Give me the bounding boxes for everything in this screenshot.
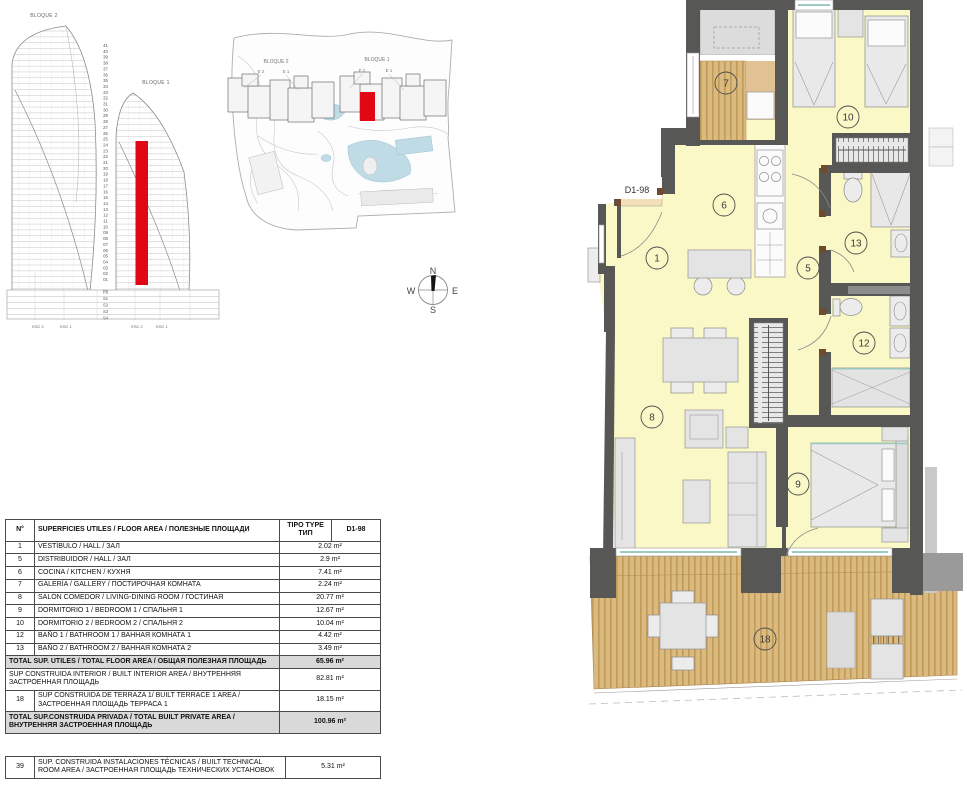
neighbour-room (700, 3, 775, 55)
tower-bloque2 (12, 26, 96, 291)
sink-13 (891, 230, 911, 257)
shower (871, 172, 911, 227)
area-row-3: 7GALERÍA / GALLERY / ПОСТИРОЧНАЯ КОМНАТА… (6, 579, 381, 592)
area-row-1: 5DISTRIBUIDOR / HALL / ЗАЛ2.9 m² (6, 554, 381, 567)
stair-label-2: ESC 2 (131, 324, 143, 329)
floor-number-08: 08 (103, 236, 108, 241)
floor-number-32: 32 (103, 96, 108, 101)
floor-number-01: 01 (103, 277, 108, 282)
floor-number-18: 18 (103, 178, 108, 183)
svg-text:8: 8 (649, 413, 655, 424)
floor-number-04: 04 (103, 259, 108, 264)
entrance-label-b1-e1: E 1 (386, 68, 393, 73)
header-unit: D1-98 (332, 520, 381, 542)
floor-number-29: 29 (103, 113, 108, 118)
row-number: 12 (6, 630, 35, 643)
row-description: VESTÍBULO / HALL / ЗАЛ (35, 541, 280, 554)
floor-number-37: 37 (103, 66, 108, 71)
basement-level-S4: S4 (103, 316, 109, 321)
floor-number-33: 33 (103, 90, 108, 95)
svg-text:6: 6 (721, 201, 727, 212)
exterior-panels (929, 128, 953, 166)
apartment-floor-plan: D1-98 1 5 6 7 8 9 10 12 13 18 (586, 0, 967, 715)
toilet-13 (844, 172, 862, 202)
area-row-5: 9DORMITORIO 1 / BEDROOM 1 / СПАЛЬНЯ 112.… (6, 605, 381, 618)
tech-number: 39 (6, 757, 35, 779)
kitchen-counter (755, 143, 785, 277)
bed-single-right (865, 16, 908, 107)
floor-number-25: 25 (103, 137, 108, 142)
basement-level-PB: PB (103, 290, 109, 295)
row-number: 1 (6, 541, 35, 554)
tech-row: 39 SUP. CONSTRUIDA INSTALACIONES TÉCNICA… (6, 757, 381, 779)
row-number: 18 (6, 690, 35, 712)
area-row-6: 10DORMITORIO 2 / BEDROOM 2 / СПАЛЬНЯ 210… (6, 618, 381, 631)
row-description: TOTAL SUP.CONSTRUIDA PRIVADA / TOTAL BUI… (6, 712, 280, 734)
floor-number-17: 17 (103, 183, 108, 188)
floor-number-06: 06 (103, 248, 108, 253)
floor-number-15: 15 (103, 195, 108, 200)
building-elevation-diagram: BLOQUE 2 BLOQUE 1 4140393837363534333231… (2, 2, 224, 337)
site-bloque2-label: BLOQUE 2 (263, 59, 288, 65)
floor-number-39: 39 (103, 55, 108, 60)
stair-core-labels: ESC 2ESC 1ESC 2ESC 1 (32, 324, 168, 329)
area-row-11: 18SUP CONSTRUIDA DE TERRAZA 1/ BUILT TER… (6, 690, 381, 712)
svg-text:10: 10 (842, 113, 854, 124)
page: { "unit": "D1-98", "elevation": { "bloqu… (0, 0, 967, 785)
svg-text:7: 7 (723, 79, 729, 90)
row-description: DORMITORIO 1 / BEDROOM 1 / СПАЛЬНЯ 1 (35, 605, 280, 618)
row-description: SALÓN COMEDOR / LIVING-DINING ROOM / ГОС… (35, 592, 280, 605)
row-number: 5 (6, 554, 35, 567)
area-row-0: 1VESTÍBULO / HALL / ЗАЛ2.02 m² (6, 541, 381, 554)
entrance-label-b1-e2: E 2 (359, 68, 366, 73)
bloque2-label: BLOQUE 2 (30, 13, 57, 19)
highlighted-unit-stack (136, 141, 149, 285)
floor-number-10: 10 (103, 224, 108, 229)
row-description: GALERÍA / GALLERY / ПОСТИРОЧНАЯ КОМНАТА (35, 579, 280, 592)
floor-number-09: 09 (103, 230, 108, 235)
row-description: TOTAL SUP. UTILES / TOTAL FLOOR AREA / О… (6, 656, 280, 669)
row-area-value: 20.77 m² (280, 592, 381, 605)
compass-w: W (407, 286, 416, 296)
tech-value: 5.31 m² (286, 757, 381, 779)
floor-number-02: 02 (103, 271, 108, 276)
row-area-value: 2.9 m² (280, 554, 381, 567)
basement-level-labels: PBS1S2S3S4 (103, 290, 109, 321)
terrace-mat (827, 612, 855, 668)
row-area-value: 10.04 m² (280, 618, 381, 631)
stair-label-3: ESC 1 (156, 324, 168, 329)
floor-number-36: 36 (103, 72, 108, 77)
row-area-value: 7.41 m² (280, 567, 381, 580)
gallery-floor (700, 61, 746, 143)
bathtub (832, 368, 910, 407)
floor-number-19: 19 (103, 172, 108, 177)
header-number: N° (6, 520, 35, 542)
stair-label-0: ESC 2 (32, 324, 44, 329)
row-description: DISTRIBUIDOR / HALL / ЗАЛ (35, 554, 280, 567)
row-number: 10 (6, 618, 35, 631)
stair-label-1: ESC 1 (60, 324, 72, 329)
wall-inset (848, 286, 910, 294)
coffee-table (683, 480, 710, 523)
area-row-7: 12BAÑO 1 / BATHROOM 1 / ВАННАЯ КОМНАТА 1… (6, 630, 381, 643)
bed-single-left (793, 8, 835, 107)
floor-number-35: 35 (103, 78, 108, 83)
tower-bloque1 (116, 93, 190, 291)
tech-desc: SUP. CONSTRUIDA INSTALACIONES TÉCNICAS /… (35, 757, 286, 779)
area-row-4: 8SALÓN COMEDOR / LIVING-DINING ROOM / ГО… (6, 592, 381, 605)
svg-text:12: 12 (858, 339, 870, 350)
site-bloque1-label: BLOQUE 1 (364, 57, 389, 63)
row-description: BAÑO 1 / BATHROOM 1 / ВАННАЯ КОМНАТА 1 (35, 630, 280, 643)
nightstand (838, 9, 863, 37)
area-row-8: 13BAÑO 2 / BATHROOM 2 / ВАННАЯ КОМНАТА 2… (6, 643, 381, 656)
svg-text:5: 5 (805, 264, 811, 275)
row-area-value: 2.02 m² (280, 541, 381, 554)
row-description: DORMITORIO 2 / BEDROOM 2 / СПАЛЬНЯ 2 (35, 618, 280, 631)
floor-number-26: 26 (103, 131, 108, 136)
row-description: COCINA / KITCHEN / КУХНЯ (35, 567, 280, 580)
row-area-value: 3.49 m² (280, 643, 381, 656)
floor-number-38: 38 (103, 61, 108, 66)
table-header-row: N° SUPERFICIES UTILES / FLOOR AREA / ПОЛ… (6, 520, 381, 542)
floor-number-12: 12 (103, 213, 108, 218)
floor-number-20: 20 (103, 166, 108, 171)
sofa (728, 452, 766, 547)
area-row-12: TOTAL SUP.CONSTRUIDA PRIVADA / TOTAL BUI… (6, 712, 381, 734)
floor-number-41: 41 (103, 43, 108, 48)
area-row-10: SUP CONSTRUIDA INTERIOR / BUILT INTERIOR… (6, 669, 381, 691)
row-number: 7 (6, 579, 35, 592)
row-area-value: 12.67 m² (280, 605, 381, 618)
basement-level-S2: S2 (103, 303, 109, 308)
tv-sideboard (615, 438, 635, 555)
floor-number-27: 27 (103, 125, 108, 130)
unit-label: D1-98 (625, 185, 650, 195)
row-description: SUP CONSTRUIDA DE TERRAZA 1/ BUILT TERRA… (35, 690, 280, 712)
neighbour-sill (700, 55, 775, 61)
bloque1-label: BLOQUE 1 (142, 80, 169, 86)
row-description: SUP CONSTRUIDA INTERIOR / BUILT INTERIOR… (6, 669, 280, 691)
area-row-2: 6COCINA / KITCHEN / КУХНЯ7.41 m² (6, 567, 381, 580)
wardrobe-bedroom2 (832, 134, 912, 166)
row-number: 6 (6, 567, 35, 580)
wardrobe-hall (749, 318, 788, 428)
site-plan: BLOQUE 2 BLOQUE 1 E 2 E 1 E 2 E 1 (198, 16, 466, 238)
header-title: SUPERFICIES UTILES / FLOOR AREA / ПОЛЕЗН… (35, 520, 280, 542)
armchair (685, 410, 723, 448)
floor-number-05: 05 (103, 254, 108, 259)
compass-n: N (430, 266, 437, 276)
svg-text:1: 1 (654, 254, 660, 265)
header-type: TIPO TYPE ТИП (280, 520, 332, 542)
floor-number-31: 31 (103, 102, 108, 107)
svg-text:13: 13 (850, 239, 862, 250)
basement-level-S3: S3 (103, 309, 109, 314)
entrance-label-b2-e2: E 2 (258, 69, 265, 74)
floor-number-40: 40 (103, 49, 108, 54)
row-area-value: 100.96 m² (280, 712, 381, 734)
technical-room-table: 39 SUP. CONSTRUIDA INSTALACIONES TÉCNICA… (5, 756, 381, 779)
floor-number-13: 13 (103, 207, 108, 212)
bed-double (811, 427, 908, 542)
appliance (747, 92, 774, 119)
floor-number-30: 30 (103, 107, 108, 112)
floor-number-22: 22 (103, 154, 108, 159)
compass-needle (431, 275, 436, 291)
row-area-value: 65.96 m² (280, 656, 381, 669)
highlighted-unit-footprint (360, 92, 375, 121)
boundary-dashed-line (589, 690, 962, 704)
side-table (726, 427, 748, 448)
floor-number-24: 24 (103, 142, 108, 147)
floor-number-34: 34 (103, 84, 108, 89)
svg-text:18: 18 (759, 635, 771, 646)
row-area-value: 2.24 m² (280, 579, 381, 592)
compass-rose: N S E W (398, 250, 470, 322)
row-description: BAÑO 2 / BATHROOM 2 / ВАННАЯ КОМНАТА 2 (35, 643, 280, 656)
floor-area-table: N° SUPERFICIES UTILES / FLOOR AREA / ПОЛ… (5, 519, 381, 734)
row-area-value: 18.15 m² (280, 690, 381, 712)
row-area-value: 4.42 m² (280, 630, 381, 643)
toilet-12 (833, 299, 862, 317)
sun-loungers (871, 599, 903, 679)
neighbour-terrace-piece (923, 553, 963, 591)
floor-number-11: 11 (103, 219, 108, 224)
row-number: 13 (6, 643, 35, 656)
floor-number-28: 28 (103, 119, 108, 124)
basement-level-S1: S1 (103, 296, 109, 301)
floor-number-07: 07 (103, 242, 108, 247)
svg-text:9: 9 (795, 480, 801, 491)
floor-number-03: 03 (103, 265, 108, 270)
entrance-label-b2-e1: E 1 (283, 69, 290, 74)
area-row-9: TOTAL SUP. UTILES / TOTAL FLOOR AREA / О… (6, 656, 381, 669)
row-number: 9 (6, 605, 35, 618)
floor-number-21: 21 (103, 160, 108, 165)
floor-number-column: 4140393837363534333231302928272625242322… (103, 43, 108, 282)
row-area-value: 82.81 m² (280, 669, 381, 691)
compass-e: E (452, 286, 458, 296)
floor-number-14: 14 (103, 201, 108, 206)
row-number: 8 (6, 592, 35, 605)
compass-s: S (430, 305, 436, 315)
floor-number-23: 23 (103, 148, 108, 153)
floor-number-16: 16 (103, 189, 108, 194)
